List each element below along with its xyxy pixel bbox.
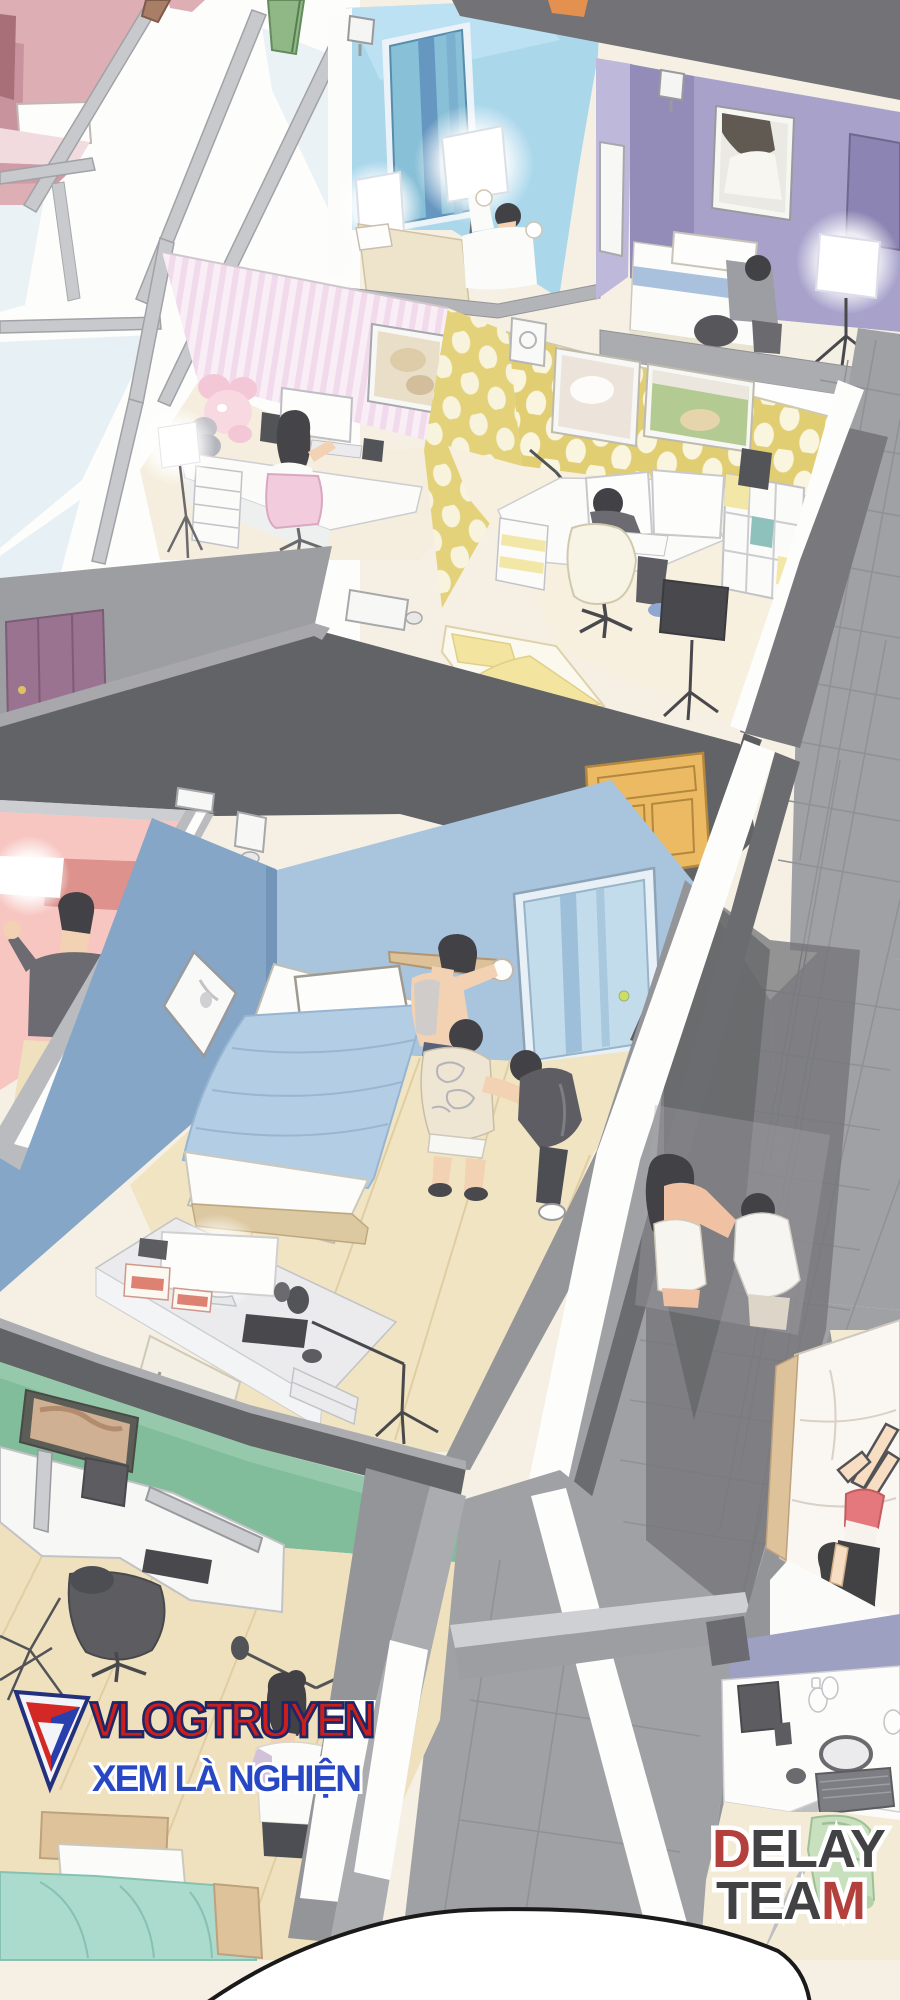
svg-text:VLOGTRUYEN: VLOGTRUYEN xyxy=(90,1693,373,1749)
svg-text:XEM LÀ NGHIỆN: XEM LÀ NGHIỆN xyxy=(92,1757,360,1799)
